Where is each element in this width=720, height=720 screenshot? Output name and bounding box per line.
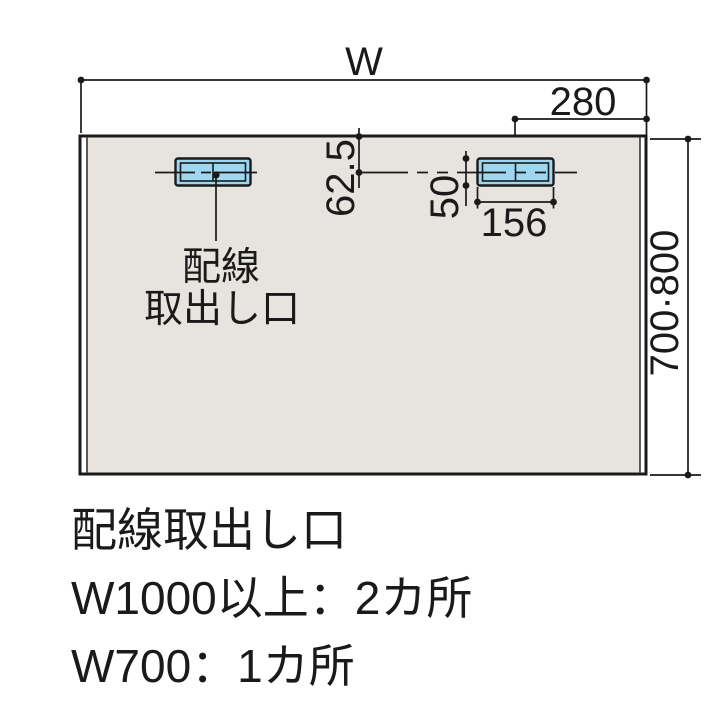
- dimension-endpoint-dot: [685, 472, 692, 479]
- notes-block: 配線取出し口 W1000以上：2カ所 W700：1カ所: [71, 496, 472, 700]
- dimension-endpoint-dot: [512, 116, 519, 123]
- dimension-endpoint-dot: [463, 155, 470, 162]
- dimension-700-800-value: 700·800: [643, 230, 687, 377]
- dimension-62-5: 62.5: [319, 128, 363, 217]
- outlet-label-line2: 取出し口: [144, 288, 300, 331]
- technical-drawing-page: W 280 62.5 50: [0, 0, 720, 720]
- dimension-endpoint-dot: [550, 199, 557, 206]
- dimension-endpoint-dot: [643, 77, 650, 84]
- dimension-w-value: W: [345, 40, 383, 84]
- outlet-label-line1: 配線: [182, 246, 260, 289]
- dimension-endpoint-dot: [685, 136, 692, 143]
- dimension-700-800: 700·800: [643, 136, 701, 479]
- dimension-280: 280: [512, 80, 650, 135]
- dimension-280-value: 280: [550, 80, 617, 124]
- dimension-156-value: 156: [481, 201, 548, 245]
- dimension-endpoint-dot: [643, 116, 650, 123]
- dimension-endpoint-dot: [78, 77, 85, 84]
- dimension-50-value: 50: [423, 175, 467, 220]
- notes-title: 配線取出し口: [71, 496, 472, 564]
- notes-line2: W1000以上：2カ所: [71, 564, 472, 632]
- notes-line3: W700：1カ所: [71, 632, 472, 700]
- dimension-endpoint-dot: [356, 133, 363, 140]
- dimension-62-5-value: 62.5: [319, 139, 363, 217]
